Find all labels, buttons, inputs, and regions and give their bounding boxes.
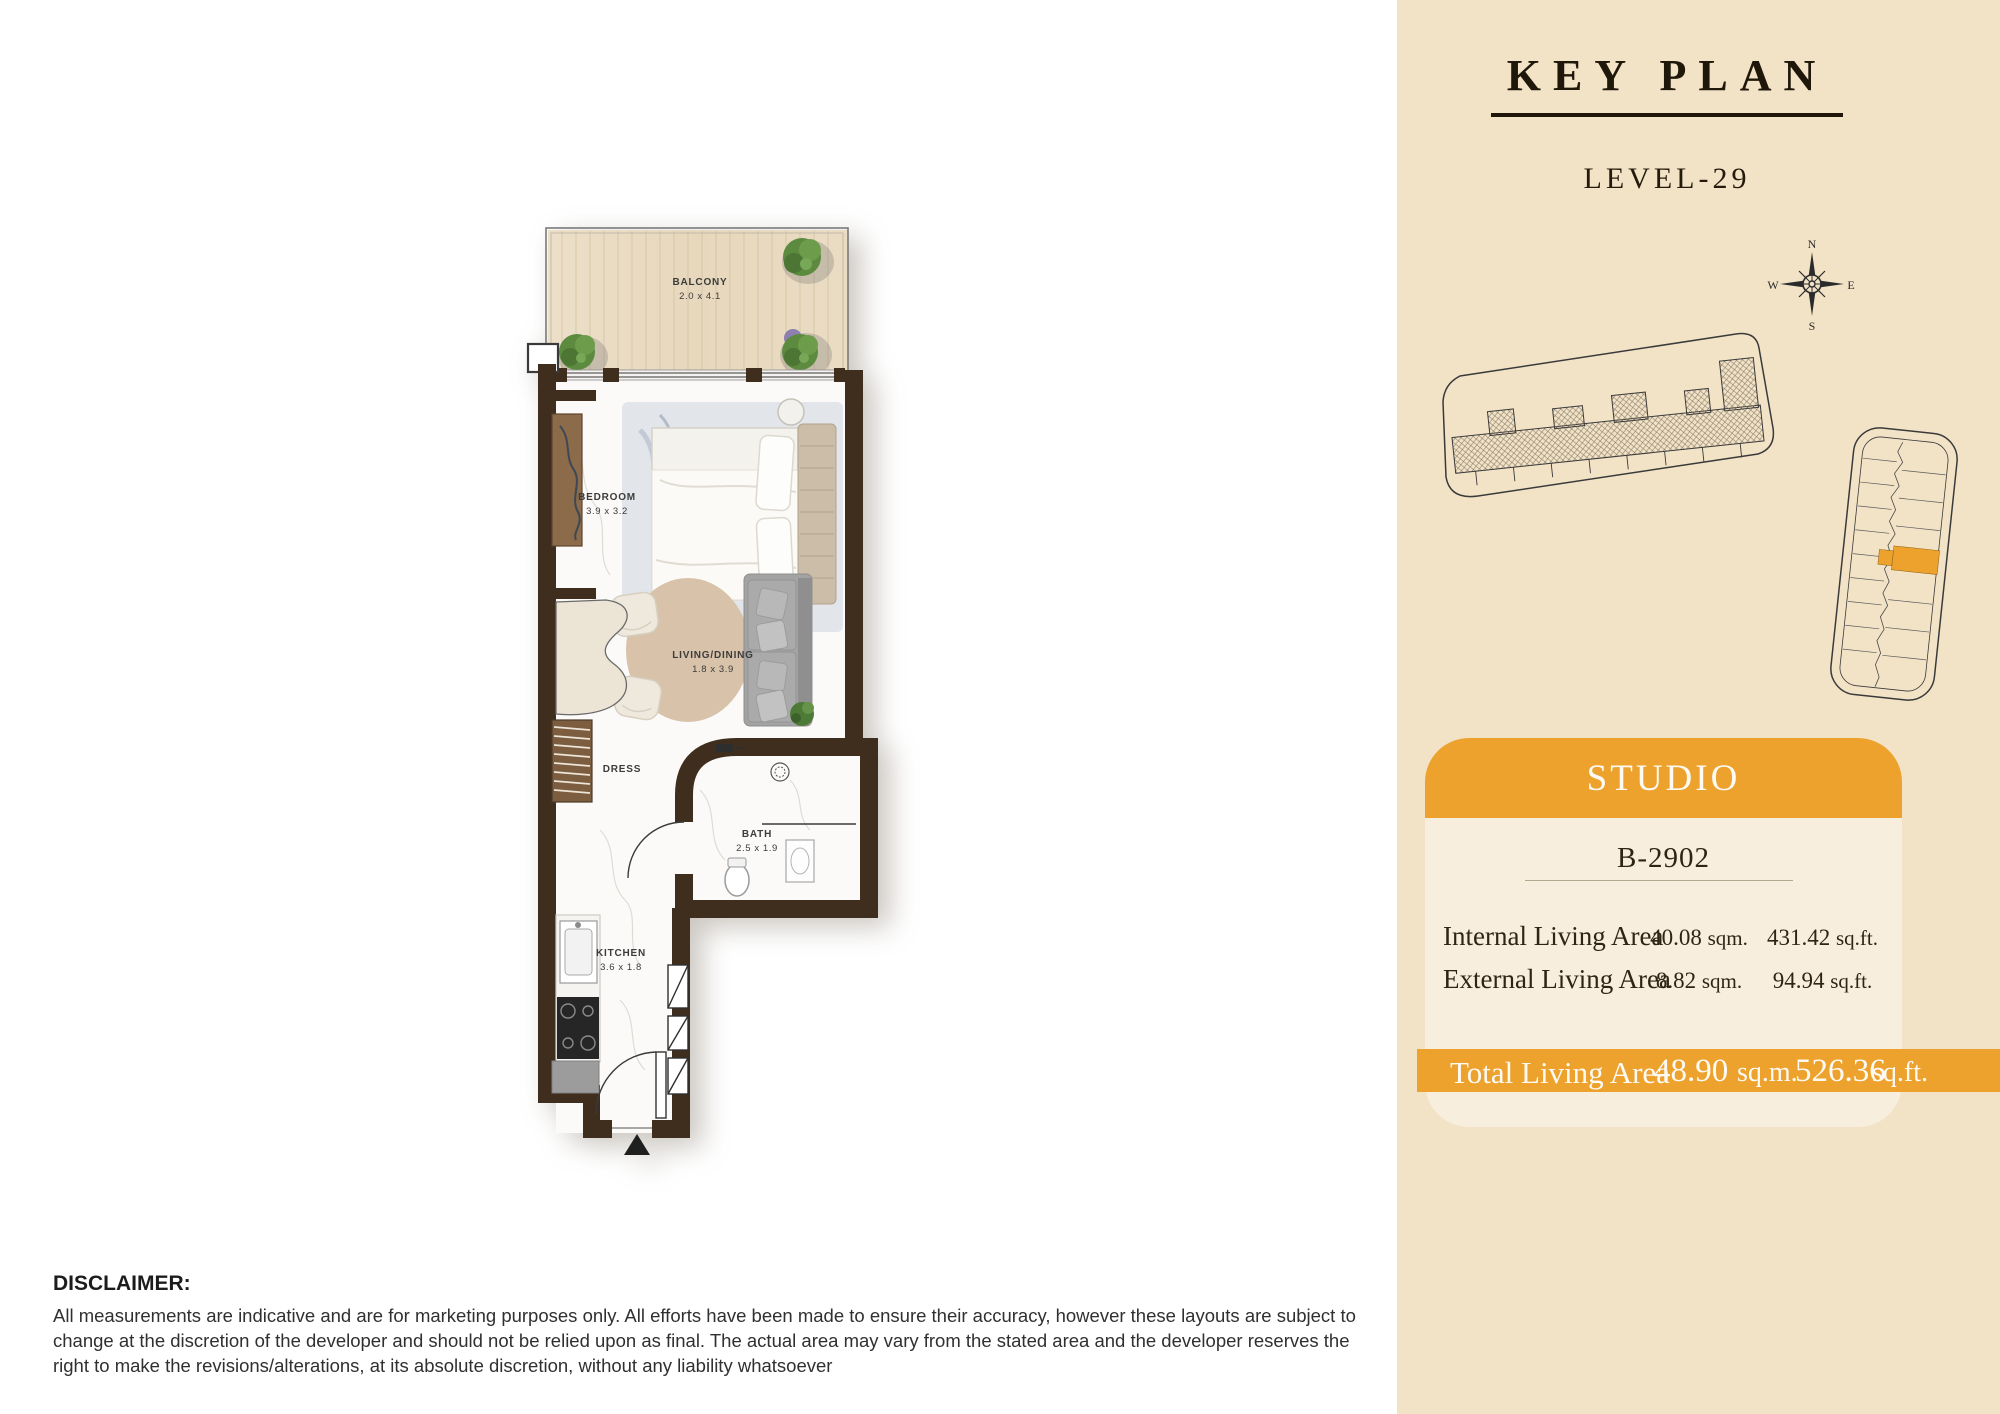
highlighted-unit xyxy=(1891,546,1939,575)
kitchen-cabinet xyxy=(552,1061,599,1093)
balcony-label: BALCONY xyxy=(672,277,727,288)
unit-number: B-2902 xyxy=(1425,842,1902,875)
bedroom-dims: 3.9 x 3.2 xyxy=(586,506,628,517)
unit-type-header: STUDIO xyxy=(1425,738,1902,818)
area-sqm-value: 40.08 xyxy=(1650,925,1702,950)
compass-s: S xyxy=(1809,319,1816,333)
plant-icon xyxy=(790,702,814,726)
living-dims: 1.8 x 3.9 xyxy=(692,664,734,675)
brochure-page: BALCONY 2.0 x 4.1 xyxy=(0,0,2000,1414)
compass-e: E xyxy=(1847,278,1854,292)
living-label: LIVING/DINING xyxy=(672,650,754,661)
service-shafts xyxy=(668,965,688,1094)
bedroom-wardrobe xyxy=(552,414,582,546)
bath-label: BATH xyxy=(742,829,772,840)
tower-key-plan xyxy=(1828,425,1959,702)
total-area-band: Total Living Area 48.90 sq.m. 526.36 sq.… xyxy=(1417,1049,2000,1092)
dress-wardrobe xyxy=(552,720,592,802)
balcony-window-wall xyxy=(556,368,845,382)
kitchen-dims: 3.6 x 1.8 xyxy=(600,962,642,973)
site-outline-building xyxy=(1443,334,1773,497)
unit-type-label: STUDIO xyxy=(1587,757,1741,800)
total-sqm-unit: sq.m. xyxy=(1737,1057,1798,1089)
bath-dims: 2.5 x 1.9 xyxy=(736,843,778,854)
compass-n: N xyxy=(1808,237,1817,251)
area-sqm-value: 8.82 xyxy=(1656,968,1696,993)
key-plan-title-wrap: KEY PLAN xyxy=(1397,50,1937,117)
disclaimer: DISCLAIMER: All measurements are indicat… xyxy=(53,1272,1378,1378)
floor-plan: BALCONY 2.0 x 4.1 xyxy=(490,195,920,1185)
disclaimer-body: All measurements are indicative and are … xyxy=(53,1303,1378,1378)
area-sqft-value: 94.94 xyxy=(1773,968,1825,993)
total-sqft-unit: sq.ft. xyxy=(1872,1057,1928,1089)
area-sqft-value: 431.42 xyxy=(1767,925,1830,950)
toilet-icon xyxy=(725,864,749,896)
area-sqm-unit: sqm. xyxy=(1708,926,1748,950)
entry-arrow-icon xyxy=(624,1134,650,1155)
key-plan-title: KEY PLAN xyxy=(1491,50,1844,117)
bedroom-label: BEDROOM xyxy=(578,492,636,503)
total-label: Total Living Area xyxy=(1450,1055,1670,1091)
disclaimer-heading: DISCLAIMER: xyxy=(53,1272,1378,1296)
compass-w: W xyxy=(1767,278,1779,292)
area-sqft-unit: sq.ft. xyxy=(1836,926,1878,950)
kitchen-label: KITCHEN xyxy=(596,948,646,959)
area-row-external: External Living Area 8.82 sqm. 94.94 sq.… xyxy=(1425,964,1902,998)
compass-rose-icon: N S W E xyxy=(1767,237,1854,333)
pouf xyxy=(778,399,804,425)
kitchen-counter xyxy=(552,915,600,1093)
area-row-internal: Internal Living Area 40.08 sqm. 431.42 s… xyxy=(1425,921,1902,955)
balcony-dims: 2.0 x 4.1 xyxy=(679,291,721,302)
shower-head-icon xyxy=(716,744,733,752)
total-sqm-value: 48.90 xyxy=(1654,1053,1728,1090)
key-plan-level: LEVEL-29 xyxy=(1397,162,1937,196)
dress-label: DRESS xyxy=(603,764,641,775)
unit-number-underline xyxy=(1525,880,1793,881)
key-plan-graphics: N S W E xyxy=(1397,220,2000,740)
area-sqft-unit: sq.ft. xyxy=(1830,969,1872,993)
sink-icon xyxy=(786,840,814,882)
area-sqm-unit: sqm. xyxy=(1702,969,1742,993)
